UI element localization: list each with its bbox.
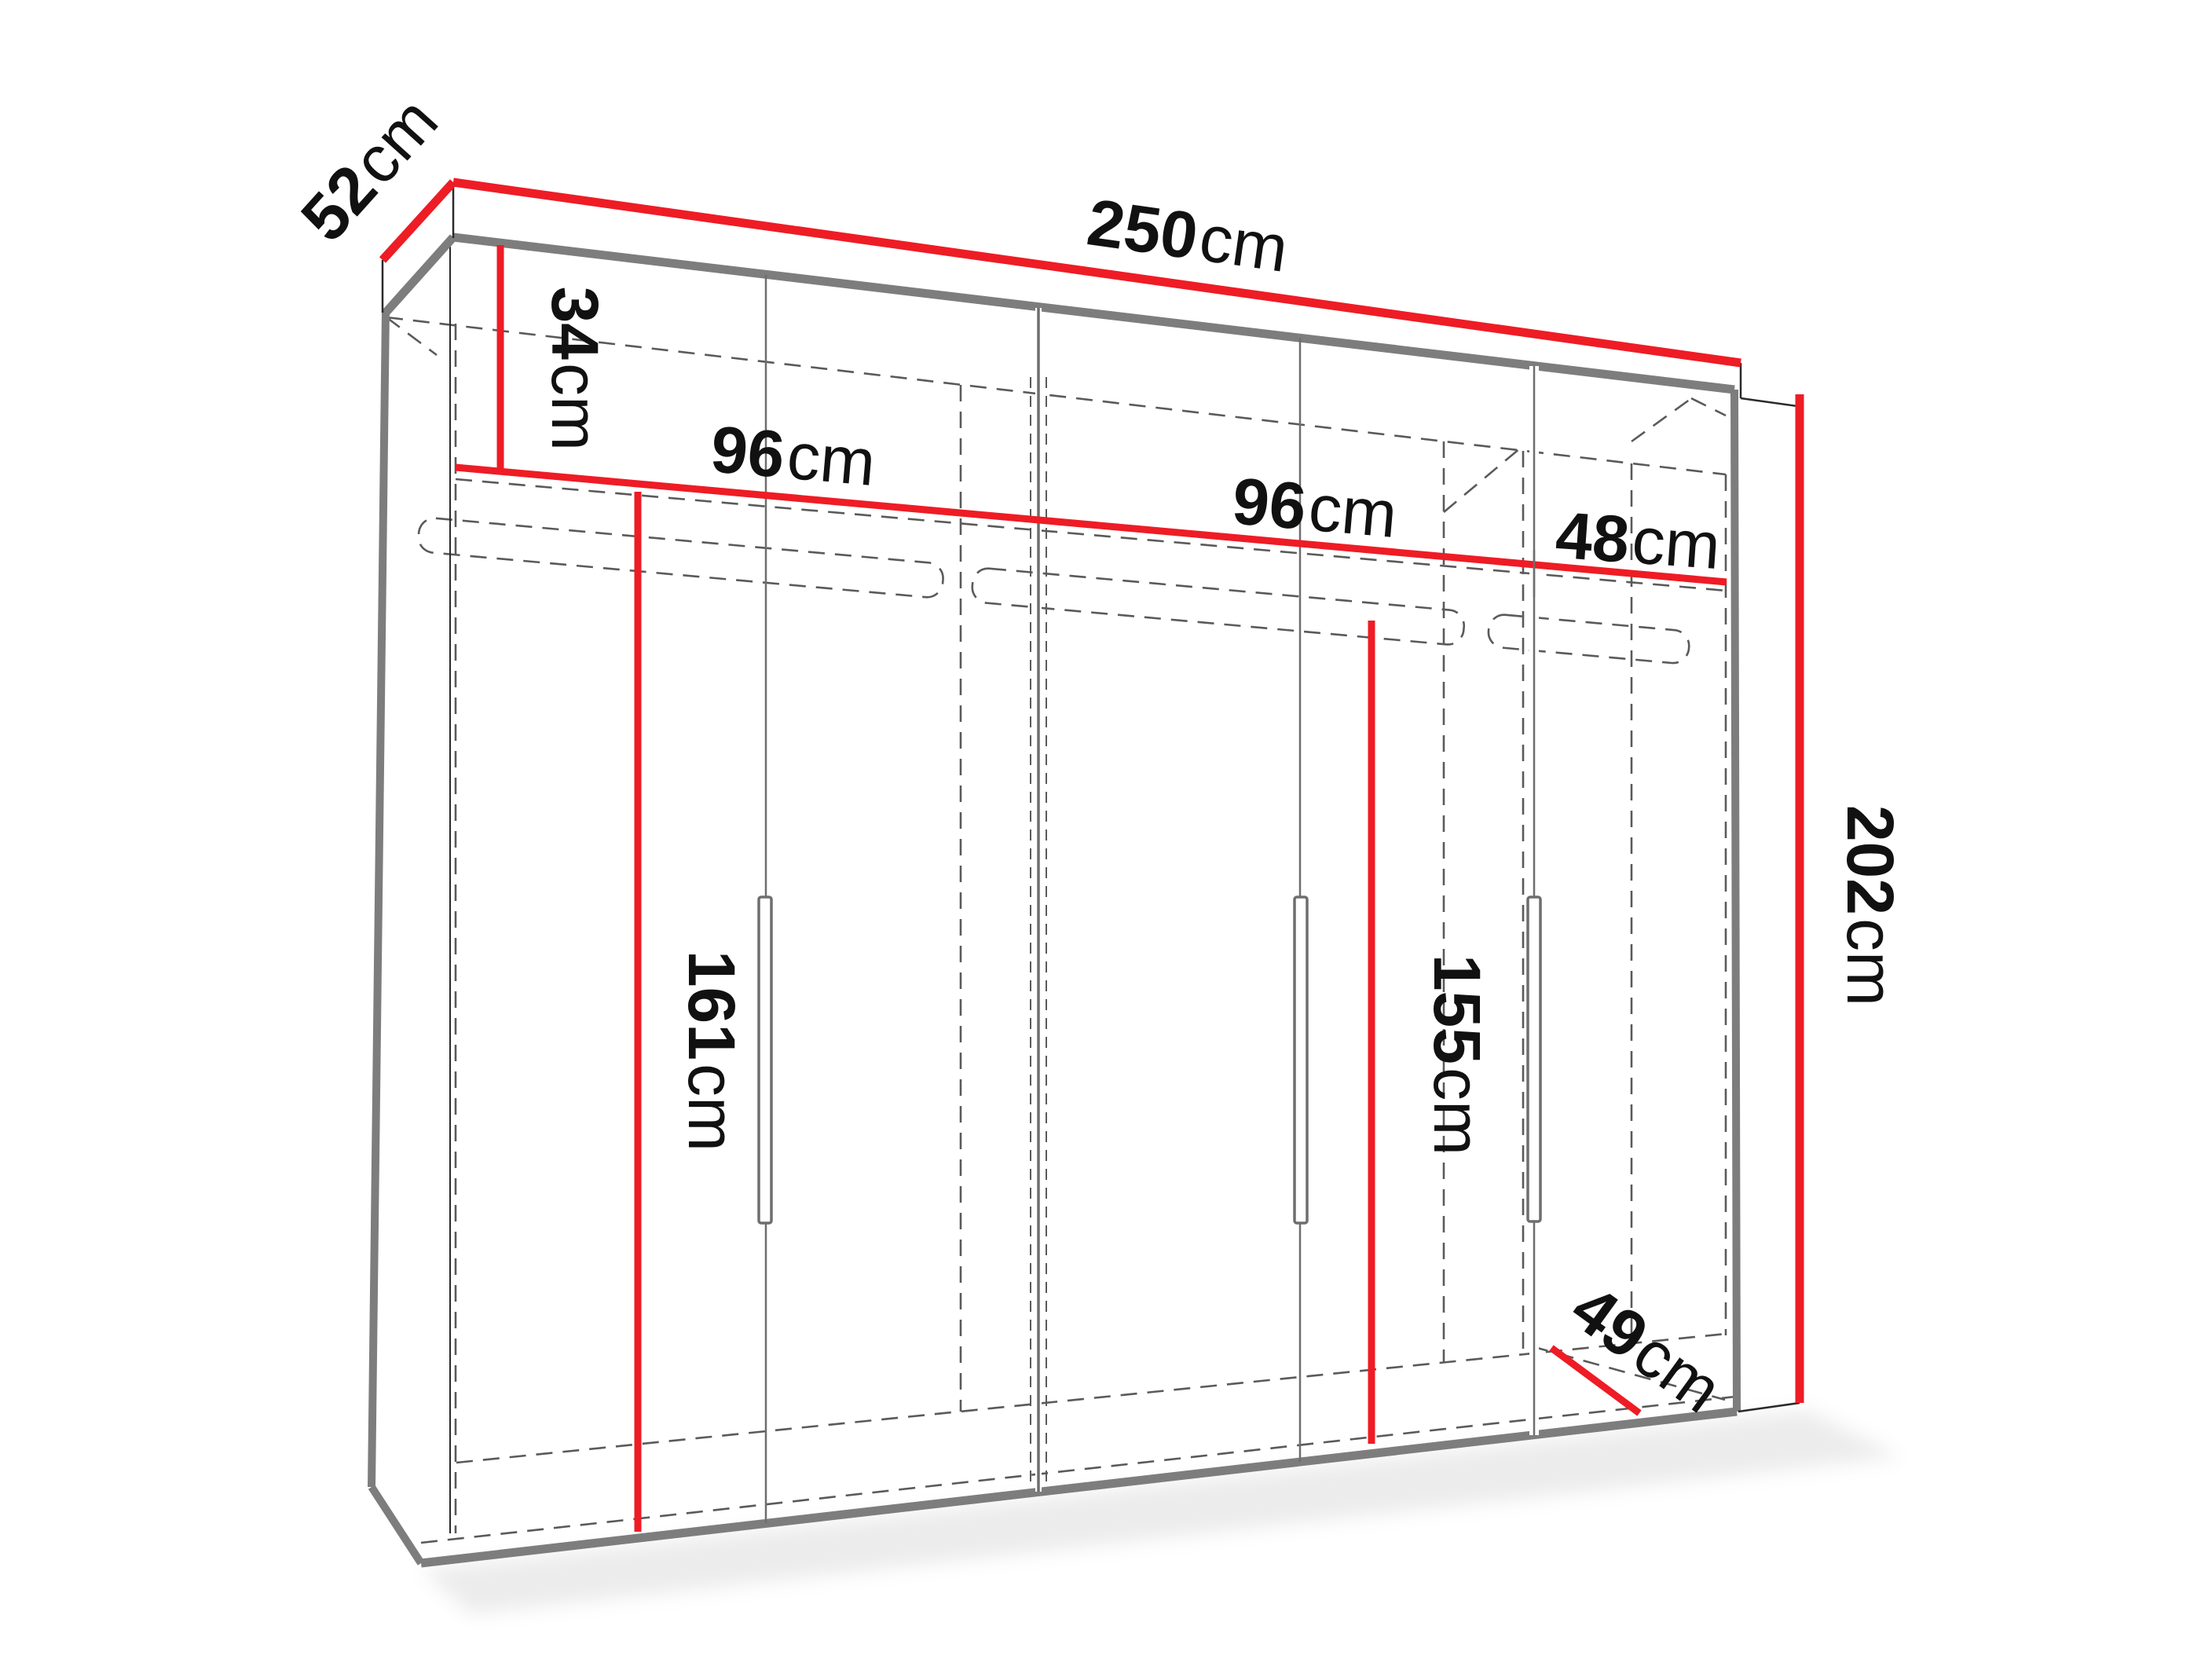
- left-front-edge: [372, 309, 386, 1487]
- svg-text:cm: cm: [1195, 200, 1292, 286]
- label-left-161: 161 cm: [675, 950, 749, 1152]
- label-left-96: 96 cm: [708, 412, 878, 500]
- svg-text:cm: cm: [1833, 918, 1907, 1006]
- svg-text:cm: cm: [784, 419, 878, 500]
- label-top-34: 34 cm: [538, 287, 612, 451]
- door-handle-middle: [1295, 897, 1307, 1223]
- svg-text:96: 96: [708, 412, 787, 492]
- top-right-depth-edge: [1741, 398, 1797, 406]
- svg-text:161: 161: [675, 950, 749, 1060]
- svg-text:250: 250: [1083, 185, 1203, 273]
- door-handle-left: [759, 897, 771, 1223]
- svg-text:cm: cm: [1420, 1068, 1494, 1155]
- dashed-diagonal-right-top-b: [1691, 398, 1726, 416]
- front-top-edge: [453, 237, 1734, 390]
- svg-text:cm: cm: [1306, 471, 1400, 551]
- floor-shadow: [421, 1410, 1901, 1614]
- label-right-48: 48 cm: [1554, 498, 1723, 583]
- label-height-202: 202 cm: [1833, 805, 1907, 1006]
- hanging-rods: [417, 517, 1690, 665]
- label-mid-155: 155 cm: [1420, 954, 1494, 1155]
- svg-text:48: 48: [1554, 498, 1632, 577]
- label-mid-96: 96 cm: [1229, 463, 1400, 551]
- bottom-right-depth-edge: [1738, 1403, 1800, 1412]
- hanging-rod-right: [1487, 613, 1690, 665]
- svg-text:96: 96: [1229, 463, 1309, 544]
- bottom-left-diagonal-edge: [372, 1487, 421, 1563]
- svg-text:cm: cm: [538, 363, 612, 451]
- dashed-diagonal-mid-top: [1444, 448, 1521, 512]
- svg-text:202: 202: [1833, 805, 1907, 915]
- label-depth-49: 49 cm: [1558, 1270, 1735, 1426]
- svg-text:cm: cm: [1630, 503, 1723, 583]
- dimension-labels: 52 cm 250 cm 34 cm 96 cm 96 cm 48 cm 161…: [287, 83, 1907, 1426]
- dashed-diagonal-right-top-a: [1632, 399, 1690, 441]
- svg-text:cm: cm: [675, 1064, 749, 1152]
- right-front-edge: [1734, 390, 1737, 1412]
- label-depth-52: 52 cm: [287, 83, 452, 255]
- door-joints: [766, 275, 1534, 1523]
- svg-text:34: 34: [538, 287, 612, 361]
- svg-text:155: 155: [1420, 954, 1494, 1064]
- wardrobe-dimension-diagram: 52 cm 250 cm 34 cm 96 cm 96 cm 48 cm 161…: [0, 0, 2212, 1659]
- hanging-rod-middle: [971, 567, 1465, 646]
- hanging-rod-left: [417, 517, 944, 599]
- door-handle-right: [1528, 897, 1540, 1221]
